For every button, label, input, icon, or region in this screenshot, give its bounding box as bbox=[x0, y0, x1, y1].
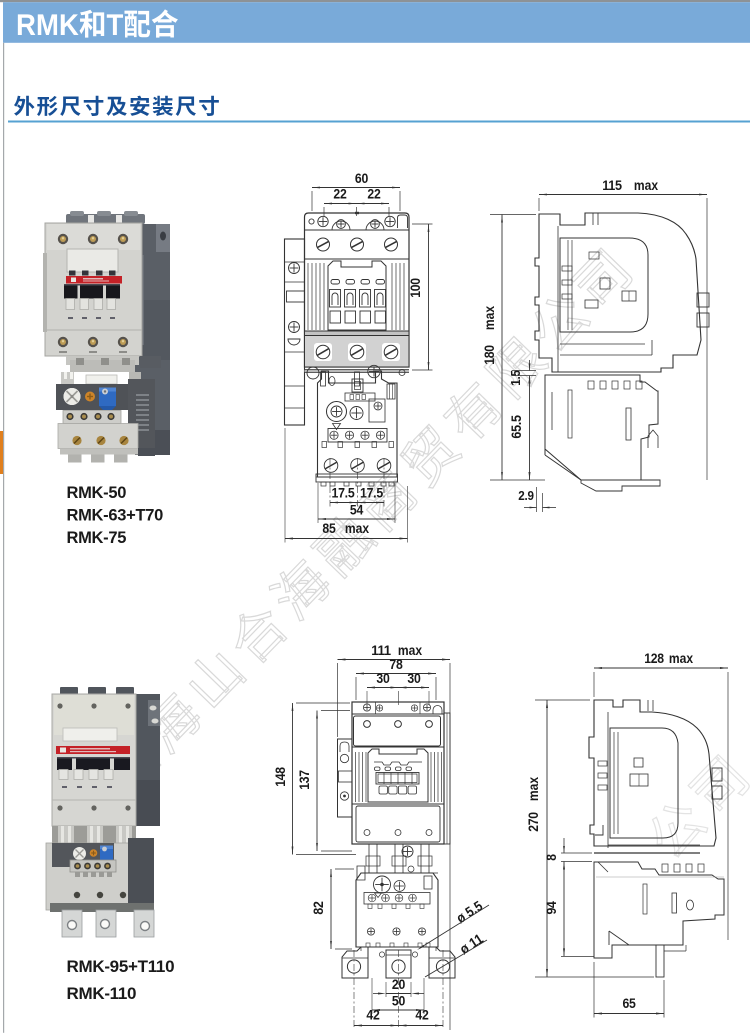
svg-text:180: 180 bbox=[482, 345, 497, 365]
svg-text:1.5: 1.5 bbox=[508, 370, 523, 385]
svg-text:42: 42 bbox=[415, 1008, 429, 1023]
svg-text:max: max bbox=[634, 178, 658, 193]
svg-text:RMK-63+T70: RMK-63+T70 bbox=[67, 507, 164, 525]
svg-text:RMK-75: RMK-75 bbox=[67, 529, 127, 547]
svg-text:30: 30 bbox=[407, 671, 421, 686]
svg-text:17.5: 17.5 bbox=[332, 486, 355, 501]
svg-text:115: 115 bbox=[602, 178, 622, 193]
svg-text:RMK-95+T110: RMK-95+T110 bbox=[67, 957, 175, 976]
svg-text:60: 60 bbox=[355, 171, 369, 186]
svg-text:RMK-110: RMK-110 bbox=[67, 984, 137, 1003]
svg-text:148: 148 bbox=[273, 767, 288, 787]
svg-text:94: 94 bbox=[544, 901, 559, 915]
svg-text:128: 128 bbox=[644, 651, 664, 666]
svg-text:RMK-50: RMK-50 bbox=[67, 484, 127, 502]
svg-text:22: 22 bbox=[367, 187, 381, 202]
svg-text:100: 100 bbox=[408, 278, 423, 298]
svg-text:ø 11: ø 11 bbox=[457, 931, 486, 958]
svg-text:max: max bbox=[669, 651, 693, 666]
svg-text:85: 85 bbox=[322, 521, 336, 536]
svg-text:42: 42 bbox=[366, 1008, 380, 1023]
svg-text:65: 65 bbox=[623, 996, 637, 1011]
svg-text:8: 8 bbox=[544, 854, 559, 861]
svg-text:78: 78 bbox=[389, 657, 403, 672]
svg-text:54: 54 bbox=[350, 503, 364, 518]
svg-text:65.5: 65.5 bbox=[508, 415, 524, 439]
svg-text:82: 82 bbox=[311, 901, 326, 915]
svg-text:17.5: 17.5 bbox=[360, 486, 383, 501]
svg-text:270: 270 bbox=[526, 812, 541, 832]
svg-text:2.9: 2.9 bbox=[518, 488, 533, 503]
svg-text:30: 30 bbox=[376, 671, 390, 686]
svg-text:max: max bbox=[345, 521, 369, 536]
svg-text:137: 137 bbox=[297, 770, 312, 790]
svg-text:max: max bbox=[526, 777, 541, 801]
svg-text:22: 22 bbox=[333, 187, 347, 202]
svg-text:max: max bbox=[398, 643, 422, 658]
svg-text:max: max bbox=[482, 306, 497, 330]
svg-text:ø 5.5: ø 5.5 bbox=[454, 898, 486, 927]
svg-text:111: 111 bbox=[371, 643, 391, 658]
